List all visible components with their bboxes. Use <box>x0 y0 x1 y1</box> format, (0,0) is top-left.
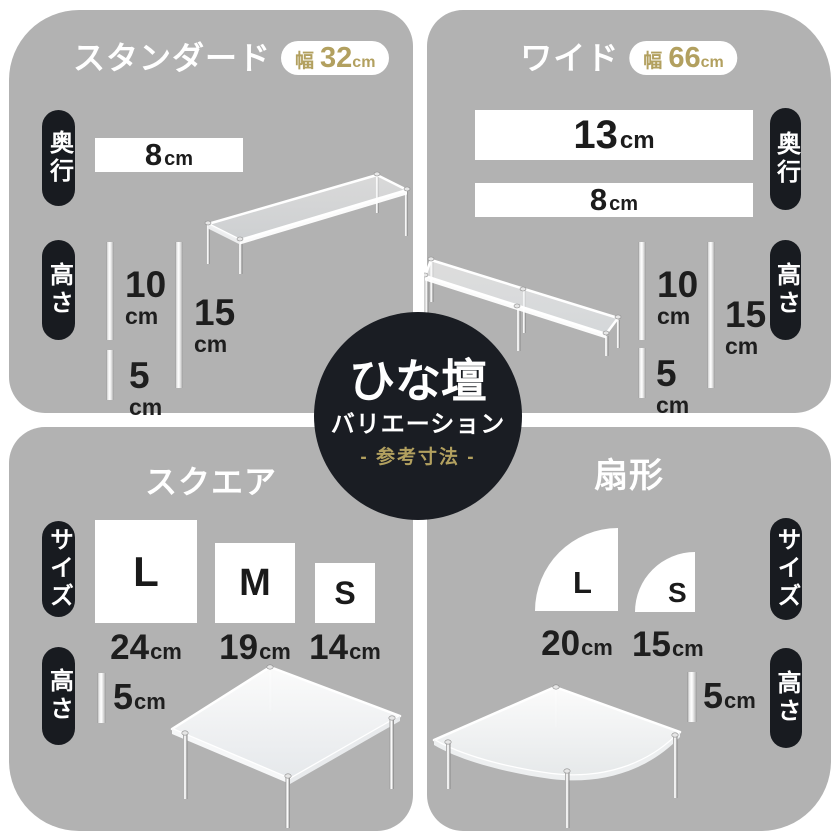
square-title: スクエア <box>145 466 277 498</box>
height-label-15cm: 15 cm <box>194 294 235 356</box>
size-value-S: 15cm <box>632 625 698 665</box>
depth-value: 8 <box>145 137 162 172</box>
wide-title: ワイド <box>520 42 619 74</box>
fan-label-L: L <box>573 565 592 601</box>
height-bar-5cm <box>106 350 114 400</box>
fan-shelf-image <box>429 677 707 833</box>
fan-label-S: S <box>668 577 687 609</box>
width-badge-value: 32 <box>320 42 352 74</box>
height-bar-10cm <box>106 242 114 340</box>
size-square-L: L <box>95 520 197 623</box>
width-badge-label: 幅 <box>295 51 314 72</box>
size-square-M: M <box>215 543 295 623</box>
height-bar-15cm <box>707 242 715 388</box>
height-pill: 高さ <box>42 240 75 340</box>
standard-shelf-image <box>201 160 416 275</box>
height-label-5cm: 5 cm <box>656 355 689 417</box>
size-value-L: 20cm <box>531 624 623 664</box>
size-pill: サイズ <box>42 521 75 617</box>
center-note: - 参考寸法 - <box>360 448 475 467</box>
width-badge-unit: cm <box>701 54 724 71</box>
height-label-5cm: 5cm <box>703 675 756 717</box>
height-label-10cm: 10 cm <box>657 266 698 328</box>
standard-width-badge: 幅32cm <box>281 41 389 75</box>
center-circle-badge: ひな壇 バリエーション - 参考寸法 - <box>314 312 522 520</box>
depth-box-13cm: 13cm <box>475 110 753 160</box>
size-square-S: S <box>315 563 375 623</box>
wide-width-badge: 幅66cm <box>629 41 737 75</box>
height-bar-10cm <box>638 242 646 340</box>
depth-pill: 奥行 <box>770 108 801 210</box>
depth-unit: cm <box>164 148 193 170</box>
width-badge-value: 66 <box>668 42 700 74</box>
center-subtitle: バリエーション <box>331 413 506 437</box>
size-pill: サイズ <box>770 518 802 620</box>
depth-box-8cm: 8cm <box>475 183 753 217</box>
square-table-image <box>159 659 421 831</box>
height-label-5cm: 5 cm <box>129 357 162 419</box>
height-bar-15cm <box>175 242 183 388</box>
height-pill: 高さ <box>770 240 801 340</box>
depth-pill: 奥行 <box>42 110 75 206</box>
height-pill: 高さ <box>770 648 802 748</box>
fan-title: 扇形 <box>594 459 664 493</box>
height-label-15cm: 15 cm <box>725 296 766 358</box>
standard-title-row: スタンダード 幅32cm <box>73 41 389 75</box>
height-pill: 高さ <box>42 647 75 745</box>
height-label-5cm: 5cm <box>113 676 166 718</box>
center-title: ひな壇 <box>349 358 487 404</box>
width-badge-unit: cm <box>352 54 375 71</box>
height-bar-5cm <box>97 673 106 723</box>
width-badge-label: 幅 <box>643 51 662 72</box>
height-bar-5cm <box>638 348 646 398</box>
wide-title-row: ワイド 幅66cm <box>520 41 737 75</box>
standard-title: スタンダード <box>73 42 271 74</box>
height-label-10cm: 10 cm <box>125 266 166 328</box>
